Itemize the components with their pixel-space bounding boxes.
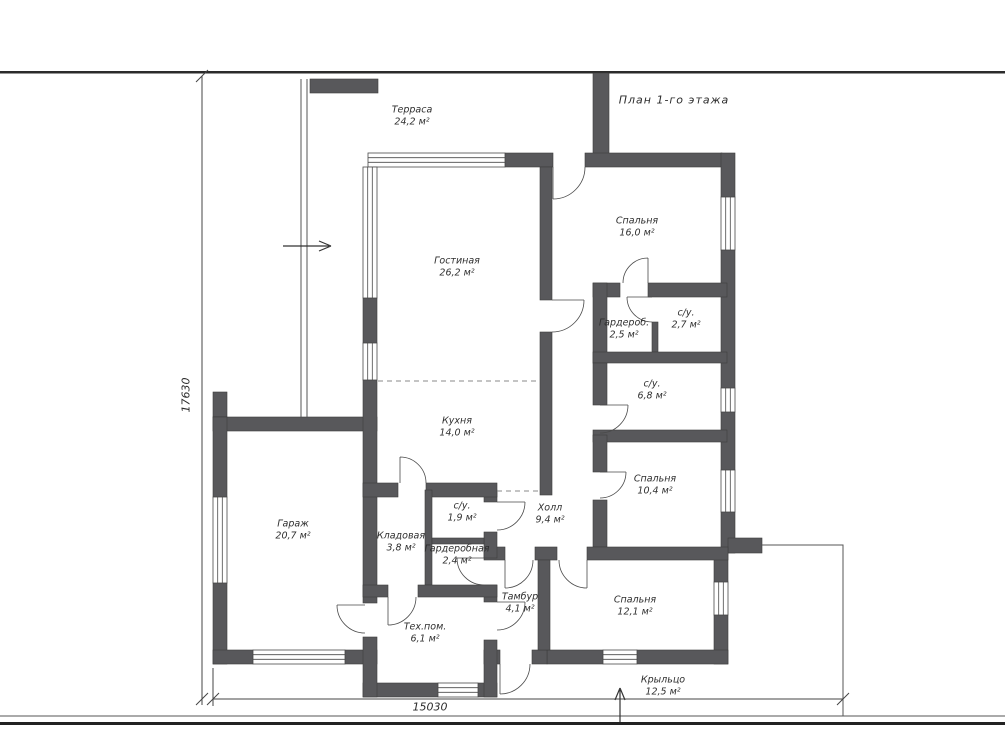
window (721, 470, 735, 512)
door (552, 300, 584, 332)
window (714, 582, 728, 615)
door (559, 560, 587, 588)
door (505, 560, 533, 588)
window (603, 650, 637, 664)
door (623, 258, 648, 283)
sheet-border (0, 71, 1005, 725)
door (497, 602, 525, 630)
door (388, 597, 416, 625)
window (363, 167, 377, 298)
window (363, 343, 377, 380)
window (368, 153, 505, 167)
garage-gate (253, 650, 345, 664)
window (213, 497, 227, 583)
dimension-label-vertical: 17630 (180, 378, 193, 413)
door (457, 558, 484, 585)
window (721, 197, 735, 250)
door (497, 502, 525, 530)
floor-plan: План 1-го этажа 17630 15030 Терраса24,2 … (0, 0, 1005, 754)
door (400, 457, 426, 483)
plan-title: План 1-го этажа (619, 94, 730, 107)
door (600, 472, 626, 498)
door (337, 605, 365, 633)
door (553, 167, 585, 199)
porch-edge (762, 545, 843, 716)
door (627, 297, 652, 322)
window (438, 683, 478, 697)
door (500, 664, 530, 694)
floor-plan-drawing (0, 0, 1005, 754)
dimension-label-horizontal: 15030 (413, 701, 448, 714)
door (600, 405, 628, 433)
window (721, 388, 735, 412)
dashed-boundaries (378, 381, 542, 491)
terrace-edge (301, 79, 307, 417)
porch-entry-arrow (615, 688, 625, 722)
